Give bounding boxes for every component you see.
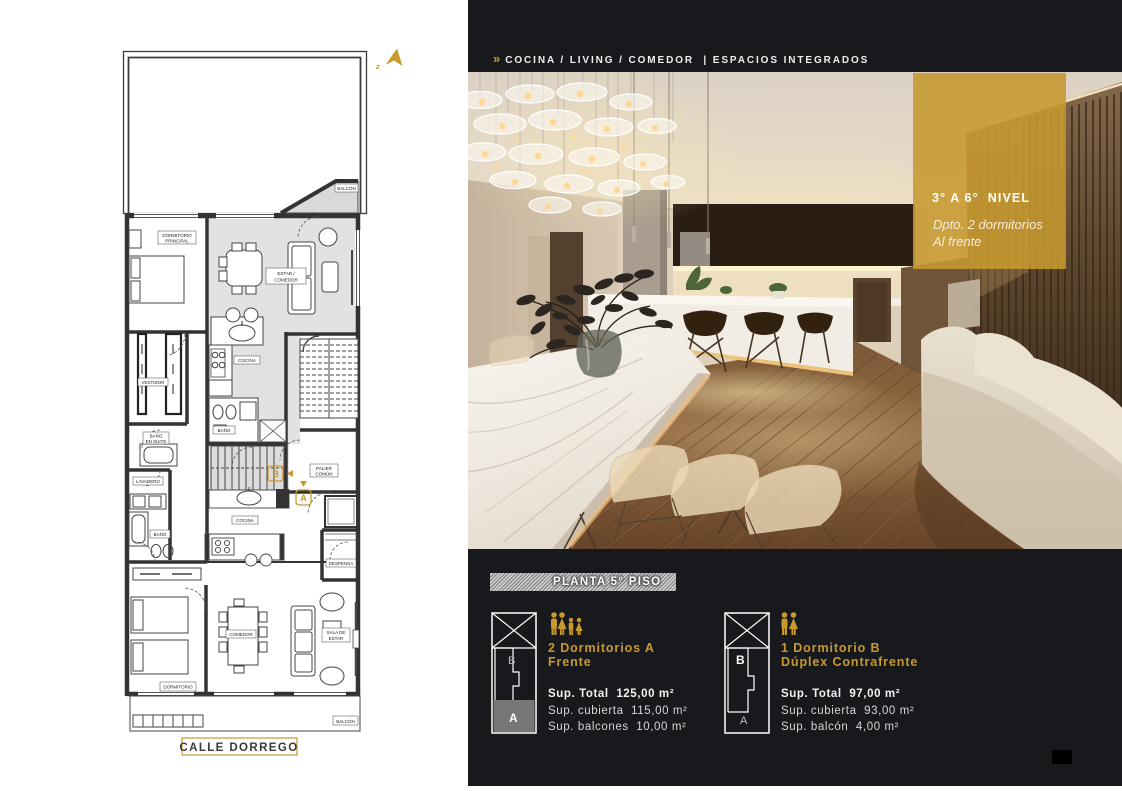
svg-text:LAVADERO: LAVADERO	[136, 479, 160, 484]
svg-text:SALA DE: SALA DE	[327, 630, 346, 635]
svg-text:DORMITORIO: DORMITORIO	[162, 233, 192, 238]
svg-text:BALCÓN: BALCÓN	[337, 185, 356, 191]
svg-text:BAÑO: BAÑO	[154, 531, 167, 537]
svg-text:COCINA: COCINA	[236, 518, 254, 523]
svg-text:PRINCIPAL: PRINCIPAL	[165, 239, 189, 244]
svg-text:COMEDOR: COMEDOR	[229, 632, 253, 637]
svg-text:VESTIDOR: VESTIDOR	[141, 380, 165, 385]
svg-text:ESTAR /: ESTAR /	[277, 271, 295, 276]
svg-text:EN SUITE: EN SUITE	[146, 439, 167, 444]
svg-text:B: B	[736, 653, 745, 667]
svg-text:COCINA: COCINA	[238, 358, 256, 363]
svg-text:B: B	[272, 469, 279, 479]
svg-text:z: z	[375, 64, 380, 71]
svg-text:BAÑO: BAÑO	[218, 427, 231, 433]
svg-text:CALLE DORREGO: CALLE DORREGO	[179, 742, 298, 754]
svg-text:B: B	[508, 655, 515, 667]
svg-text:DORMITORIO: DORMITORIO	[163, 685, 193, 690]
svg-text:ESTAR: ESTAR	[329, 636, 344, 641]
svg-text:COMÚN: COMÚN	[316, 471, 333, 477]
svg-text:A: A	[300, 493, 307, 503]
svg-text:DESPENSA: DESPENSA	[329, 561, 354, 566]
svg-text:A: A	[740, 715, 748, 727]
svg-text:BALCÓN: BALCÓN	[336, 718, 355, 724]
svg-text:COMEDOR: COMEDOR	[274, 278, 298, 283]
svg-text:A: A	[509, 711, 518, 725]
svg-text:BAÑO: BAÑO	[150, 433, 163, 439]
svg-text:PALIER: PALIER	[316, 466, 332, 471]
